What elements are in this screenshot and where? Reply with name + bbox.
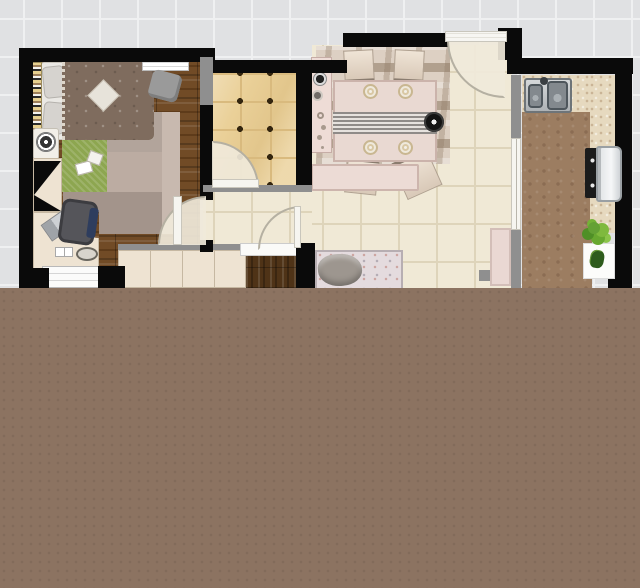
decor-plate [312, 90, 323, 101]
sink-basin [528, 84, 543, 108]
wall [33, 268, 49, 288]
desk-switches[interactable] [55, 247, 73, 257]
floor-plan-canvas [0, 0, 640, 588]
wall [19, 48, 215, 62]
sink-basin [547, 81, 568, 110]
dinner-plate [363, 140, 378, 155]
table-runner [333, 112, 437, 134]
pink-panel [490, 228, 511, 286]
oven[interactable] [596, 146, 622, 202]
half-wall [296, 185, 312, 192]
bedroom-door[interactable] [173, 196, 182, 245]
wall [296, 60, 312, 192]
hall-door[interactable] [294, 206, 301, 248]
wardrobe-open-door [34, 161, 61, 195]
dining-chair[interactable] [343, 49, 375, 84]
half-wall [511, 75, 521, 139]
dinner-plate [398, 84, 413, 99]
wall [98, 266, 125, 288]
faucet [540, 77, 548, 85]
wall [205, 60, 347, 73]
half-wall [511, 228, 521, 288]
entry-door[interactable] [212, 179, 259, 188]
floor-marker [479, 270, 490, 281]
table-fan[interactable] [36, 132, 56, 152]
dinner-plate [363, 84, 378, 99]
potted-plant[interactable] [588, 222, 600, 234]
bottom-cabinet-row[interactable] [118, 250, 246, 288]
dinner-plate [398, 140, 413, 155]
desk-oval-pad[interactable] [76, 247, 98, 261]
dining-chair[interactable] [393, 49, 425, 84]
drawer-unit[interactable] [42, 266, 100, 288]
kitchen-floor [522, 112, 592, 288]
wardrobe-open-door [34, 195, 61, 211]
low-cabinet[interactable] [311, 164, 419, 191]
decor-chain [317, 112, 324, 119]
kitchen-sliding-door[interactable] [511, 138, 521, 230]
dining-room-door[interactable] [445, 31, 507, 42]
decor-plate [313, 72, 327, 86]
lower-blank-area [0, 288, 640, 588]
rosette-centerpiece [424, 112, 444, 132]
area-rug[interactable] [105, 152, 162, 194]
wall [19, 48, 33, 288]
half-wall [200, 57, 213, 105]
open-wardrobe[interactable] [33, 158, 62, 212]
wall [343, 33, 449, 47]
